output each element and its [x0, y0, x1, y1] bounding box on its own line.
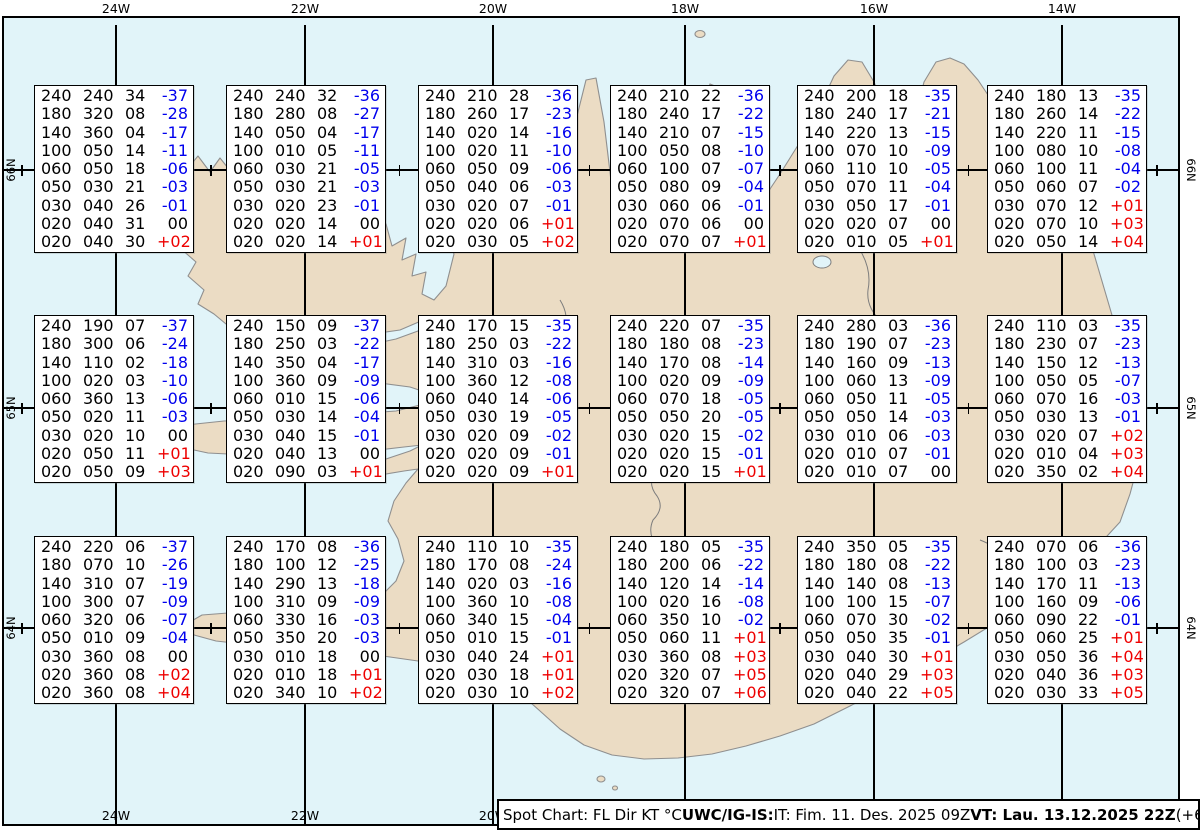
level-fl: 060 — [804, 611, 835, 629]
level-kt: 09 — [509, 160, 530, 178]
level-fl: 060 — [233, 160, 264, 178]
longitude-label-top: 24W — [102, 1, 130, 16]
level-row: 06001015-06 — [233, 390, 380, 408]
level-tmp: +01 — [349, 233, 380, 251]
level-kt: 31 — [125, 215, 146, 233]
level-kt: 03 — [1078, 556, 1099, 574]
level-tmp: -23 — [1110, 556, 1141, 574]
level-kt: 13 — [317, 575, 338, 593]
level-fl: 030 — [804, 648, 835, 666]
level-dir: 060 — [1036, 629, 1067, 647]
level-fl: 050 — [425, 629, 456, 647]
level-row: 05008009-04 — [617, 178, 764, 196]
level-row: 03004015-01 — [233, 427, 380, 445]
level-fl: 060 — [425, 611, 456, 629]
level-dir: 220 — [1036, 124, 1067, 142]
level-kt: 14 — [317, 408, 338, 426]
level-dir: 170 — [1036, 575, 1067, 593]
level-dir: 020 — [659, 463, 690, 481]
level-fl: 100 — [425, 593, 456, 611]
level-kt: 08 — [125, 666, 146, 684]
level-row: 14015012-13 — [994, 354, 1141, 372]
level-dir: 190 — [846, 335, 877, 353]
level-dir: 040 — [1036, 666, 1067, 684]
level-row: 06009022-01 — [994, 611, 1141, 629]
level-tmp: -01 — [1110, 408, 1141, 426]
graticule-tick — [963, 165, 974, 176]
level-fl: 100 — [425, 142, 456, 160]
level-tmp: +05 — [733, 666, 764, 684]
level-fl: 140 — [617, 354, 648, 372]
level-tmp: -13 — [920, 354, 951, 372]
level-dir: 160 — [1036, 593, 1067, 611]
level-dir: 020 — [659, 593, 690, 611]
level-kt: 03 — [125, 372, 146, 390]
level-kt: 06 — [509, 178, 530, 196]
level-kt: 11 — [701, 629, 722, 647]
graticule-tick — [394, 165, 405, 176]
level-kt: 09 — [701, 178, 722, 196]
level-dir: 240 — [659, 105, 690, 123]
level-tmp: -16 — [541, 354, 572, 372]
level-kt: 35 — [888, 629, 909, 647]
level-row: 02002009-01 — [425, 445, 572, 463]
level-kt: 28 — [509, 87, 530, 105]
level-tmp: -16 — [541, 575, 572, 593]
level-tmp: 00 — [349, 445, 380, 463]
level-fl: 060 — [994, 160, 1025, 178]
status-bar: Spot Chart: FL Dir KT °C UWC/IG-IS: IT: … — [497, 799, 1200, 830]
level-tmp: -28 — [157, 105, 188, 123]
level-dir: 180 — [659, 335, 690, 353]
status-segment: Spot Chart: FL Dir KT °C — [503, 806, 682, 824]
level-kt: 04 — [125, 124, 146, 142]
level-dir: 050 — [83, 445, 114, 463]
level-row: 05003019-05 — [425, 408, 572, 426]
level-row: 02004030+02 — [41, 233, 188, 251]
level-kt: 09 — [701, 372, 722, 390]
level-dir: 090 — [275, 463, 306, 481]
level-tmp: -05 — [733, 408, 764, 426]
level-fl: 180 — [994, 335, 1025, 353]
level-tmp: -03 — [541, 178, 572, 196]
level-row: 02032007+06 — [617, 684, 764, 702]
level-row: 14022011-15 — [994, 124, 1141, 142]
spot-box-r3c6: 24007006-3618010003-2314017011-131001600… — [987, 536, 1147, 704]
level-fl: 060 — [994, 390, 1025, 408]
level-kt: 11 — [888, 390, 909, 408]
level-tmp: 00 — [349, 215, 380, 233]
level-fl: 180 — [425, 335, 456, 353]
level-tmp: +01 — [733, 233, 764, 251]
level-tmp: -36 — [1110, 538, 1141, 556]
level-row: 10005014-11 — [41, 142, 188, 160]
level-dir: 220 — [659, 317, 690, 335]
longitude-label-top: 16W — [860, 1, 888, 16]
level-fl: 020 — [425, 666, 456, 684]
level-fl: 100 — [994, 142, 1025, 160]
level-dir: 060 — [659, 629, 690, 647]
level-tmp: -02 — [733, 427, 764, 445]
level-fl: 100 — [994, 372, 1025, 390]
level-row: 24022006-37 — [41, 538, 188, 556]
level-row: 10007010-09 — [804, 142, 951, 160]
level-tmp: 00 — [157, 427, 188, 445]
level-row: 05005020-05 — [617, 408, 764, 426]
level-fl: 060 — [41, 611, 72, 629]
level-fl: 020 — [233, 684, 264, 702]
level-tmp: -16 — [541, 124, 572, 142]
level-row: 0200700600 — [617, 215, 764, 233]
level-tmp: -09 — [157, 593, 188, 611]
level-dir: 170 — [467, 317, 498, 335]
level-kt: 06 — [888, 427, 909, 445]
level-kt: 11 — [509, 142, 530, 160]
level-kt: 08 — [125, 105, 146, 123]
latitude-label-right: 66N — [1184, 158, 1198, 181]
level-tmp: -03 — [349, 611, 380, 629]
level-dir: 250 — [275, 335, 306, 353]
level-tmp: -27 — [349, 105, 380, 123]
level-fl: 020 — [994, 445, 1025, 463]
level-kt: 18 — [888, 87, 909, 105]
level-row: 18007010-26 — [41, 556, 188, 574]
level-row: 24024032-36 — [233, 87, 380, 105]
level-row: 14005004-17 — [233, 124, 380, 142]
level-row: 06011010-05 — [804, 160, 951, 178]
level-kt: 09 — [509, 445, 530, 463]
level-dir: 010 — [846, 233, 877, 251]
level-kt: 11 — [1078, 575, 1099, 593]
level-dir: 070 — [659, 233, 690, 251]
level-kt: 10 — [125, 556, 146, 574]
level-fl: 020 — [41, 233, 72, 251]
level-row: 05005014-03 — [804, 408, 951, 426]
level-row: 18025003-22 — [425, 335, 572, 353]
level-tmp: -21 — [920, 105, 951, 123]
level-kt: 26 — [125, 197, 146, 215]
level-fl: 050 — [233, 178, 264, 196]
level-fl: 240 — [233, 87, 264, 105]
level-row: 24021028-36 — [425, 87, 572, 105]
level-dir: 350 — [659, 611, 690, 629]
level-dir: 020 — [467, 124, 498, 142]
level-dir: 020 — [83, 427, 114, 445]
level-tmp: +01 — [920, 233, 951, 251]
level-row: 10008010-08 — [994, 142, 1141, 160]
level-dir: 040 — [83, 197, 114, 215]
level-row: 06003021-05 — [233, 160, 380, 178]
level-dir: 360 — [83, 390, 114, 408]
level-fl: 020 — [617, 215, 648, 233]
level-dir: 040 — [467, 178, 498, 196]
level-tmp: -22 — [920, 556, 951, 574]
level-fl: 050 — [233, 408, 264, 426]
level-row: 18026014-22 — [994, 105, 1141, 123]
level-fl: 240 — [994, 538, 1025, 556]
level-row: 02005011+01 — [41, 445, 188, 463]
level-kt: 06 — [701, 215, 722, 233]
level-row: 06033016-03 — [233, 611, 380, 629]
level-kt: 11 — [125, 408, 146, 426]
level-tmp: -04 — [733, 178, 764, 196]
level-kt: 14 — [509, 124, 530, 142]
level-fl: 050 — [617, 629, 648, 647]
level-tmp: -35 — [733, 538, 764, 556]
level-tmp: -01 — [157, 197, 188, 215]
level-dir: 070 — [846, 178, 877, 196]
level-tmp: +03 — [1110, 445, 1141, 463]
level-row: 24035005-35 — [804, 538, 951, 556]
level-fl: 020 — [617, 463, 648, 481]
level-fl: 140 — [41, 354, 72, 372]
level-dir: 340 — [467, 611, 498, 629]
level-tmp: +01 — [1110, 197, 1141, 215]
level-row: 06032006-07 — [41, 611, 188, 629]
graticule-tick — [774, 403, 785, 414]
level-kt: 07 — [1078, 178, 1099, 196]
level-kt: 22 — [888, 684, 909, 702]
level-dir: 200 — [659, 556, 690, 574]
spot-box-r3c1: 24022006-3718007010-2614031007-191003000… — [34, 536, 194, 704]
level-kt: 09 — [125, 629, 146, 647]
level-kt: 07 — [701, 124, 722, 142]
level-fl: 030 — [617, 648, 648, 666]
level-kt: 23 — [317, 197, 338, 215]
level-dir: 360 — [659, 648, 690, 666]
level-kt: 03 — [1078, 317, 1099, 335]
level-dir: 280 — [275, 105, 306, 123]
level-tmp: -01 — [349, 197, 380, 215]
level-fl: 020 — [994, 684, 1025, 702]
level-dir: 050 — [846, 390, 877, 408]
level-tmp: -07 — [733, 160, 764, 178]
spot-box-r1c4: 24021022-3618024017-2214021007-151000500… — [610, 85, 770, 253]
level-kt: 05 — [317, 142, 338, 160]
level-kt: 07 — [125, 593, 146, 611]
spot-box-r2c3: 24017015-3518025003-2214031003-161003601… — [418, 315, 578, 483]
level-dir: 230 — [1036, 335, 1067, 353]
latitude-label-left: 64N — [4, 616, 18, 639]
level-dir: 360 — [83, 124, 114, 142]
level-row: 05003013-01 — [994, 408, 1141, 426]
level-dir: 020 — [83, 408, 114, 426]
level-fl: 180 — [41, 335, 72, 353]
level-dir: 090 — [1036, 611, 1067, 629]
level-tmp: +04 — [157, 684, 188, 702]
level-kt: 10 — [888, 142, 909, 160]
level-tmp: -09 — [349, 593, 380, 611]
longitude-label-bottom: 24W — [102, 808, 130, 823]
level-kt: 19 — [509, 408, 530, 426]
level-fl: 240 — [804, 87, 835, 105]
level-tmp: -13 — [920, 575, 951, 593]
level-tmp: +01 — [1110, 629, 1141, 647]
level-kt: 14 — [125, 142, 146, 160]
level-fl: 240 — [41, 87, 72, 105]
level-tmp: -36 — [920, 317, 951, 335]
level-kt: 08 — [317, 105, 338, 123]
level-kt: 08 — [125, 684, 146, 702]
level-kt: 32 — [317, 87, 338, 105]
level-fl: 020 — [994, 215, 1025, 233]
level-row: 03002007-01 — [425, 197, 572, 215]
level-dir: 030 — [467, 233, 498, 251]
level-fl: 140 — [994, 124, 1025, 142]
level-kt: 15 — [509, 629, 530, 647]
level-tmp: +01 — [541, 666, 572, 684]
level-fl: 140 — [425, 575, 456, 593]
level-dir: 050 — [846, 408, 877, 426]
level-dir: 050 — [83, 142, 114, 160]
level-fl: 030 — [994, 648, 1025, 666]
level-fl: 240 — [425, 87, 456, 105]
level-tmp: -09 — [349, 372, 380, 390]
level-kt: 09 — [509, 463, 530, 481]
level-row: 10016009-06 — [994, 593, 1141, 611]
level-kt: 02 — [1078, 463, 1099, 481]
level-dir: 070 — [1036, 538, 1067, 556]
level-dir: 060 — [659, 197, 690, 215]
level-kt: 08 — [701, 354, 722, 372]
level-row: 02032007+05 — [617, 666, 764, 684]
longitude-label-top: 22W — [291, 1, 319, 16]
level-tmp: -05 — [541, 408, 572, 426]
level-row: 05005035-01 — [804, 629, 951, 647]
level-dir: 070 — [1036, 197, 1067, 215]
level-tmp: -01 — [541, 197, 572, 215]
level-dir: 170 — [659, 354, 690, 372]
level-row: 24021022-36 — [617, 87, 764, 105]
level-fl: 020 — [233, 463, 264, 481]
level-tmp: -17 — [349, 124, 380, 142]
level-row: 06007030-02 — [804, 611, 951, 629]
level-tmp: +03 — [1110, 215, 1141, 233]
level-fl: 100 — [233, 593, 264, 611]
level-kt: 05 — [888, 233, 909, 251]
level-row: 10005005-07 — [994, 372, 1141, 390]
spot-box-r1c6: 24018013-3518026014-2214022011-151000801… — [987, 85, 1147, 253]
level-tmp: -01 — [1110, 611, 1141, 629]
level-row: 05003021-03 — [233, 178, 380, 196]
level-fl: 100 — [804, 593, 835, 611]
level-fl: 020 — [994, 666, 1025, 684]
level-row: 18018008-22 — [804, 556, 951, 574]
level-fl: 060 — [804, 390, 835, 408]
level-fl: 020 — [233, 666, 264, 684]
level-dir: 020 — [659, 427, 690, 445]
level-kt: 13 — [125, 390, 146, 408]
level-row: 05006025+01 — [994, 629, 1141, 647]
level-fl: 050 — [804, 178, 835, 196]
level-kt: 07 — [701, 317, 722, 335]
level-row: 10005008-10 — [617, 142, 764, 160]
level-fl: 050 — [41, 408, 72, 426]
level-kt: 07 — [509, 197, 530, 215]
level-row: 06007016-03 — [994, 390, 1141, 408]
level-dir: 320 — [83, 611, 114, 629]
level-kt: 11 — [1078, 160, 1099, 178]
level-tmp: -06 — [541, 390, 572, 408]
level-kt: 04 — [317, 354, 338, 372]
level-kt: 12 — [317, 556, 338, 574]
level-row: 24019007-37 — [41, 317, 188, 335]
level-row: 06035010-02 — [617, 611, 764, 629]
level-dir: 030 — [83, 178, 114, 196]
level-dir: 020 — [467, 445, 498, 463]
level-row: 06010007-07 — [617, 160, 764, 178]
level-tmp: -19 — [157, 575, 188, 593]
level-tmp: +01 — [349, 463, 380, 481]
level-row: 10010015-07 — [804, 593, 951, 611]
level-tmp: +03 — [157, 463, 188, 481]
level-dir: 020 — [846, 215, 877, 233]
level-tmp: -36 — [349, 538, 380, 556]
level-row: 02003018+01 — [425, 666, 572, 684]
level-tmp: -14 — [733, 354, 764, 372]
level-kt: 14 — [701, 575, 722, 593]
level-dir: 350 — [846, 538, 877, 556]
level-row: 18017008-24 — [425, 556, 572, 574]
level-fl: 030 — [233, 197, 264, 215]
level-fl: 020 — [233, 445, 264, 463]
level-fl: 050 — [41, 629, 72, 647]
level-fl: 020 — [617, 666, 648, 684]
level-row: 03036008+03 — [617, 648, 764, 666]
level-tmp: +01 — [541, 648, 572, 666]
level-fl: 030 — [425, 427, 456, 445]
level-tmp: +05 — [1110, 684, 1141, 702]
level-row: 18024017-21 — [804, 105, 951, 123]
level-fl: 030 — [41, 197, 72, 215]
level-dir: 010 — [846, 445, 877, 463]
spot-box-r3c4: 24018005-3518020006-2214012014-141000201… — [610, 536, 770, 704]
level-kt: 13 — [317, 445, 338, 463]
level-kt: 16 — [317, 611, 338, 629]
level-row: 14036004-17 — [41, 124, 188, 142]
level-row: 18028008-27 — [233, 105, 380, 123]
level-tmp: +01 — [733, 629, 764, 647]
level-fl: 240 — [425, 317, 456, 335]
level-kt: 13 — [1078, 87, 1099, 105]
level-fl: 140 — [41, 575, 72, 593]
level-fl: 030 — [425, 648, 456, 666]
level-row: 14035004-17 — [233, 354, 380, 372]
level-fl: 060 — [233, 390, 264, 408]
level-dir: 010 — [275, 390, 306, 408]
level-kt: 09 — [1078, 593, 1099, 611]
level-kt: 08 — [125, 648, 146, 666]
level-fl: 020 — [425, 463, 456, 481]
level-dir: 040 — [275, 427, 306, 445]
level-kt: 09 — [317, 372, 338, 390]
level-fl: 030 — [425, 197, 456, 215]
level-kt: 08 — [701, 142, 722, 160]
level-dir: 360 — [83, 666, 114, 684]
status-segment: (+61 h) — [1176, 806, 1200, 824]
level-kt: 13 — [888, 124, 909, 142]
level-row: 14022013-15 — [804, 124, 951, 142]
level-row: 02004036+03 — [994, 666, 1141, 684]
level-fl: 100 — [41, 372, 72, 390]
level-fl: 030 — [617, 427, 648, 445]
level-dir: 010 — [846, 463, 877, 481]
level-dir: 040 — [846, 648, 877, 666]
level-tmp: -07 — [1110, 372, 1141, 390]
graticule-tick — [205, 403, 216, 414]
level-tmp: +02 — [349, 684, 380, 702]
level-fl: 020 — [804, 463, 835, 481]
